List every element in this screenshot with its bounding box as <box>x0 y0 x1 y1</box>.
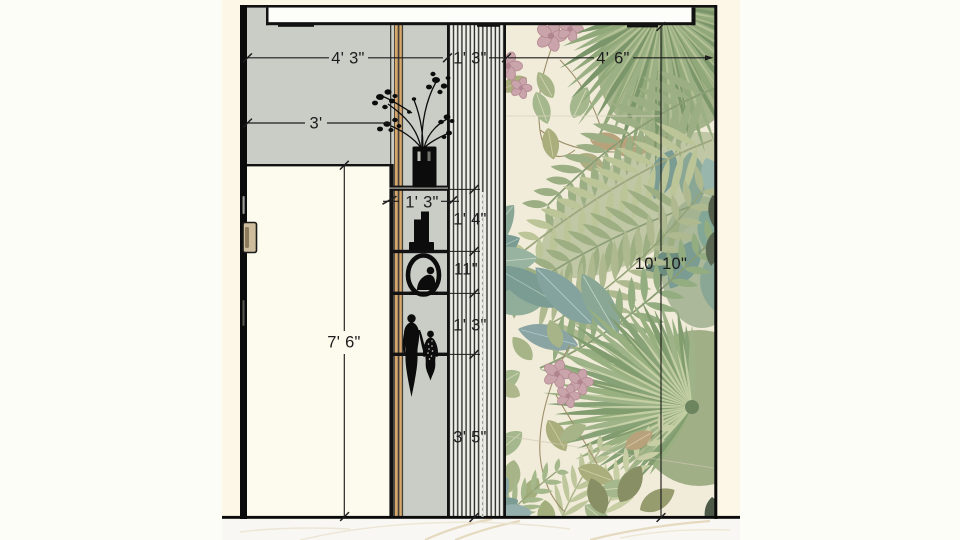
svg-text:7' 6": 7' 6" <box>327 334 360 352</box>
svg-text:3': 3' <box>310 115 323 133</box>
svg-text:1' 4": 1' 4" <box>453 211 486 229</box>
svg-text:1' 3": 1' 3" <box>453 50 486 68</box>
svg-text:4' 3": 4' 3" <box>331 50 364 68</box>
svg-text:1' 3": 1' 3" <box>405 193 438 211</box>
svg-text:4' 6": 4' 6" <box>596 50 629 68</box>
svg-text:10' 10": 10' 10" <box>635 255 687 273</box>
svg-text:1' 3": 1' 3" <box>453 317 486 335</box>
svg-text:11": 11" <box>454 261 478 279</box>
svg-text:3' 5": 3' 5" <box>453 429 486 447</box>
